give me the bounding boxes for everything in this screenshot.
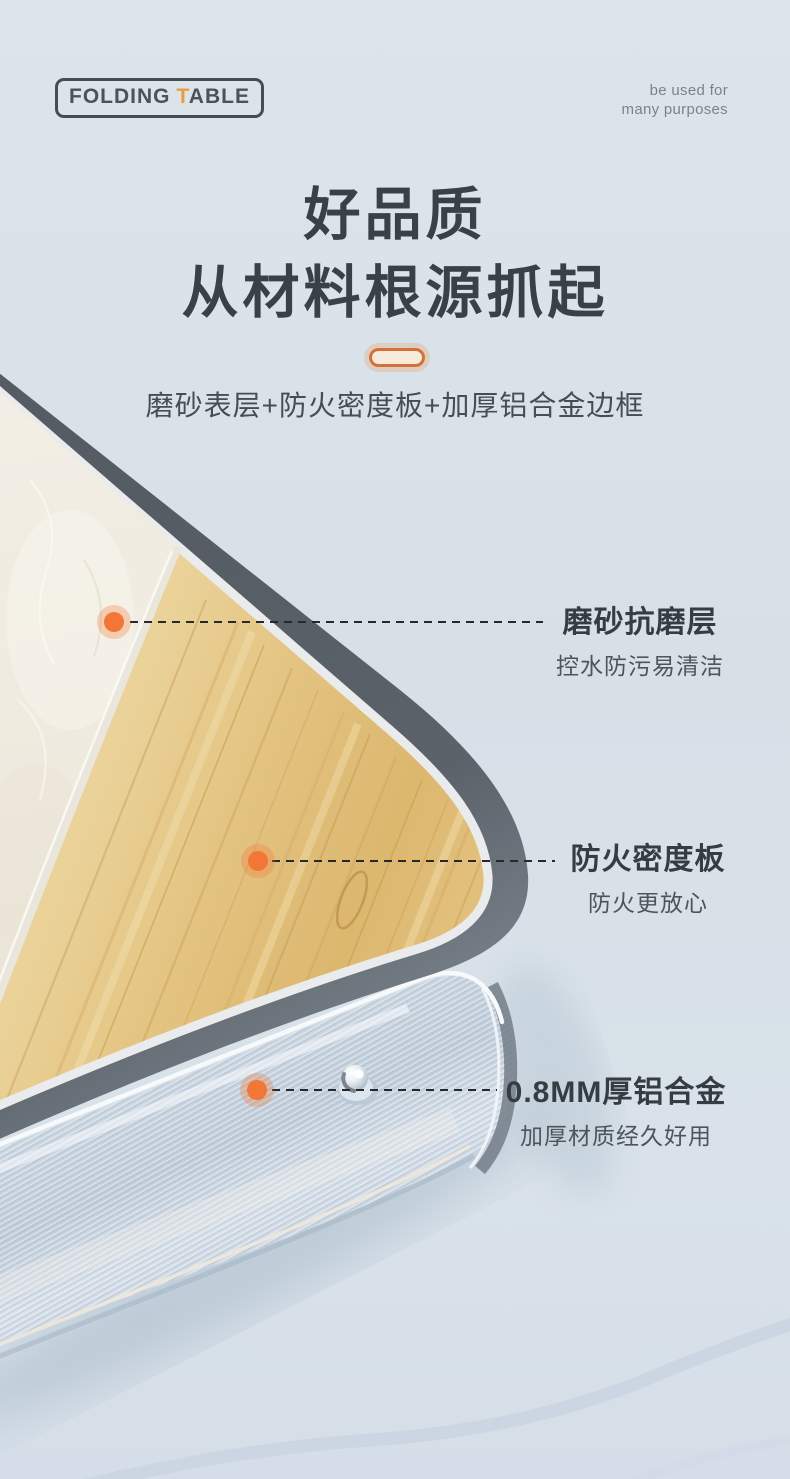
callout-aluminum-alloy: 0.8MM厚铝合金 加厚材质经久好用: [466, 1076, 766, 1150]
callout-subtext: 加厚材质经久好用: [466, 1123, 766, 1150]
brand-logo-t-accent: T: [177, 85, 189, 108]
callout-frosted-layer: 磨砂抗磨层 控水防污易清洁: [505, 606, 775, 680]
header-tagline: be used for many purposes: [622, 81, 728, 119]
callout-density-board: 防火密度板 防火更放心: [513, 843, 783, 917]
callout-subtext: 控水防污易清洁: [505, 653, 775, 680]
callout-heading: 防火密度板: [513, 843, 783, 877]
callout-heading: 磨砂抗磨层: [505, 606, 775, 640]
callout-subtext: 防火更放心: [513, 890, 783, 917]
callout-dot-icon-1: [97, 605, 131, 639]
page-title: 好品质 从材料根源抓起: [0, 176, 790, 332]
page-subtitle: 磨砂表层+防火密度板+加厚铝合金边框: [0, 384, 790, 424]
brand-logo: FOLDINGTABLE: [55, 78, 264, 118]
callout-heading: 0.8MM厚铝合金: [466, 1076, 766, 1110]
brand-logo-word: FOLDING: [69, 85, 171, 108]
callout-dot-icon-3: [240, 1073, 274, 1107]
page-title-line-2: 从材料根源抓起: [0, 254, 790, 332]
brand-logo-rest: ABLE: [189, 85, 250, 108]
divider-pill: [369, 348, 425, 367]
callout-dot-icon-2: [241, 844, 275, 878]
tagline-line-1: be used for: [622, 81, 728, 100]
page: FOLDINGTABLE be used for many purposes 好…: [0, 0, 790, 1479]
tagline-line-2: many purposes: [622, 100, 728, 119]
page-title-line-1: 好品质: [0, 176, 790, 254]
